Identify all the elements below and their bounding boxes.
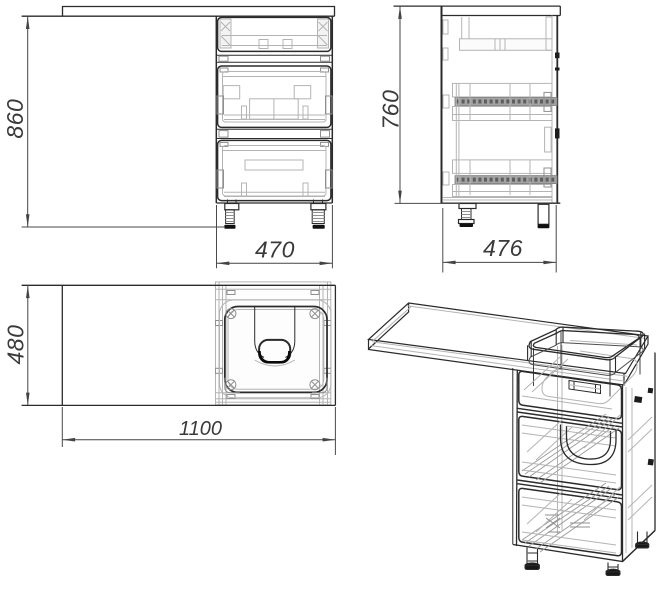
svg-text:1100: 1100 — [179, 418, 222, 440]
svg-text:860: 860 — [2, 99, 28, 139]
svg-text:470: 470 — [255, 236, 295, 262]
svg-text:480: 480 — [3, 325, 29, 365]
svg-text:760: 760 — [378, 90, 404, 130]
svg-text:476: 476 — [483, 235, 523, 261]
